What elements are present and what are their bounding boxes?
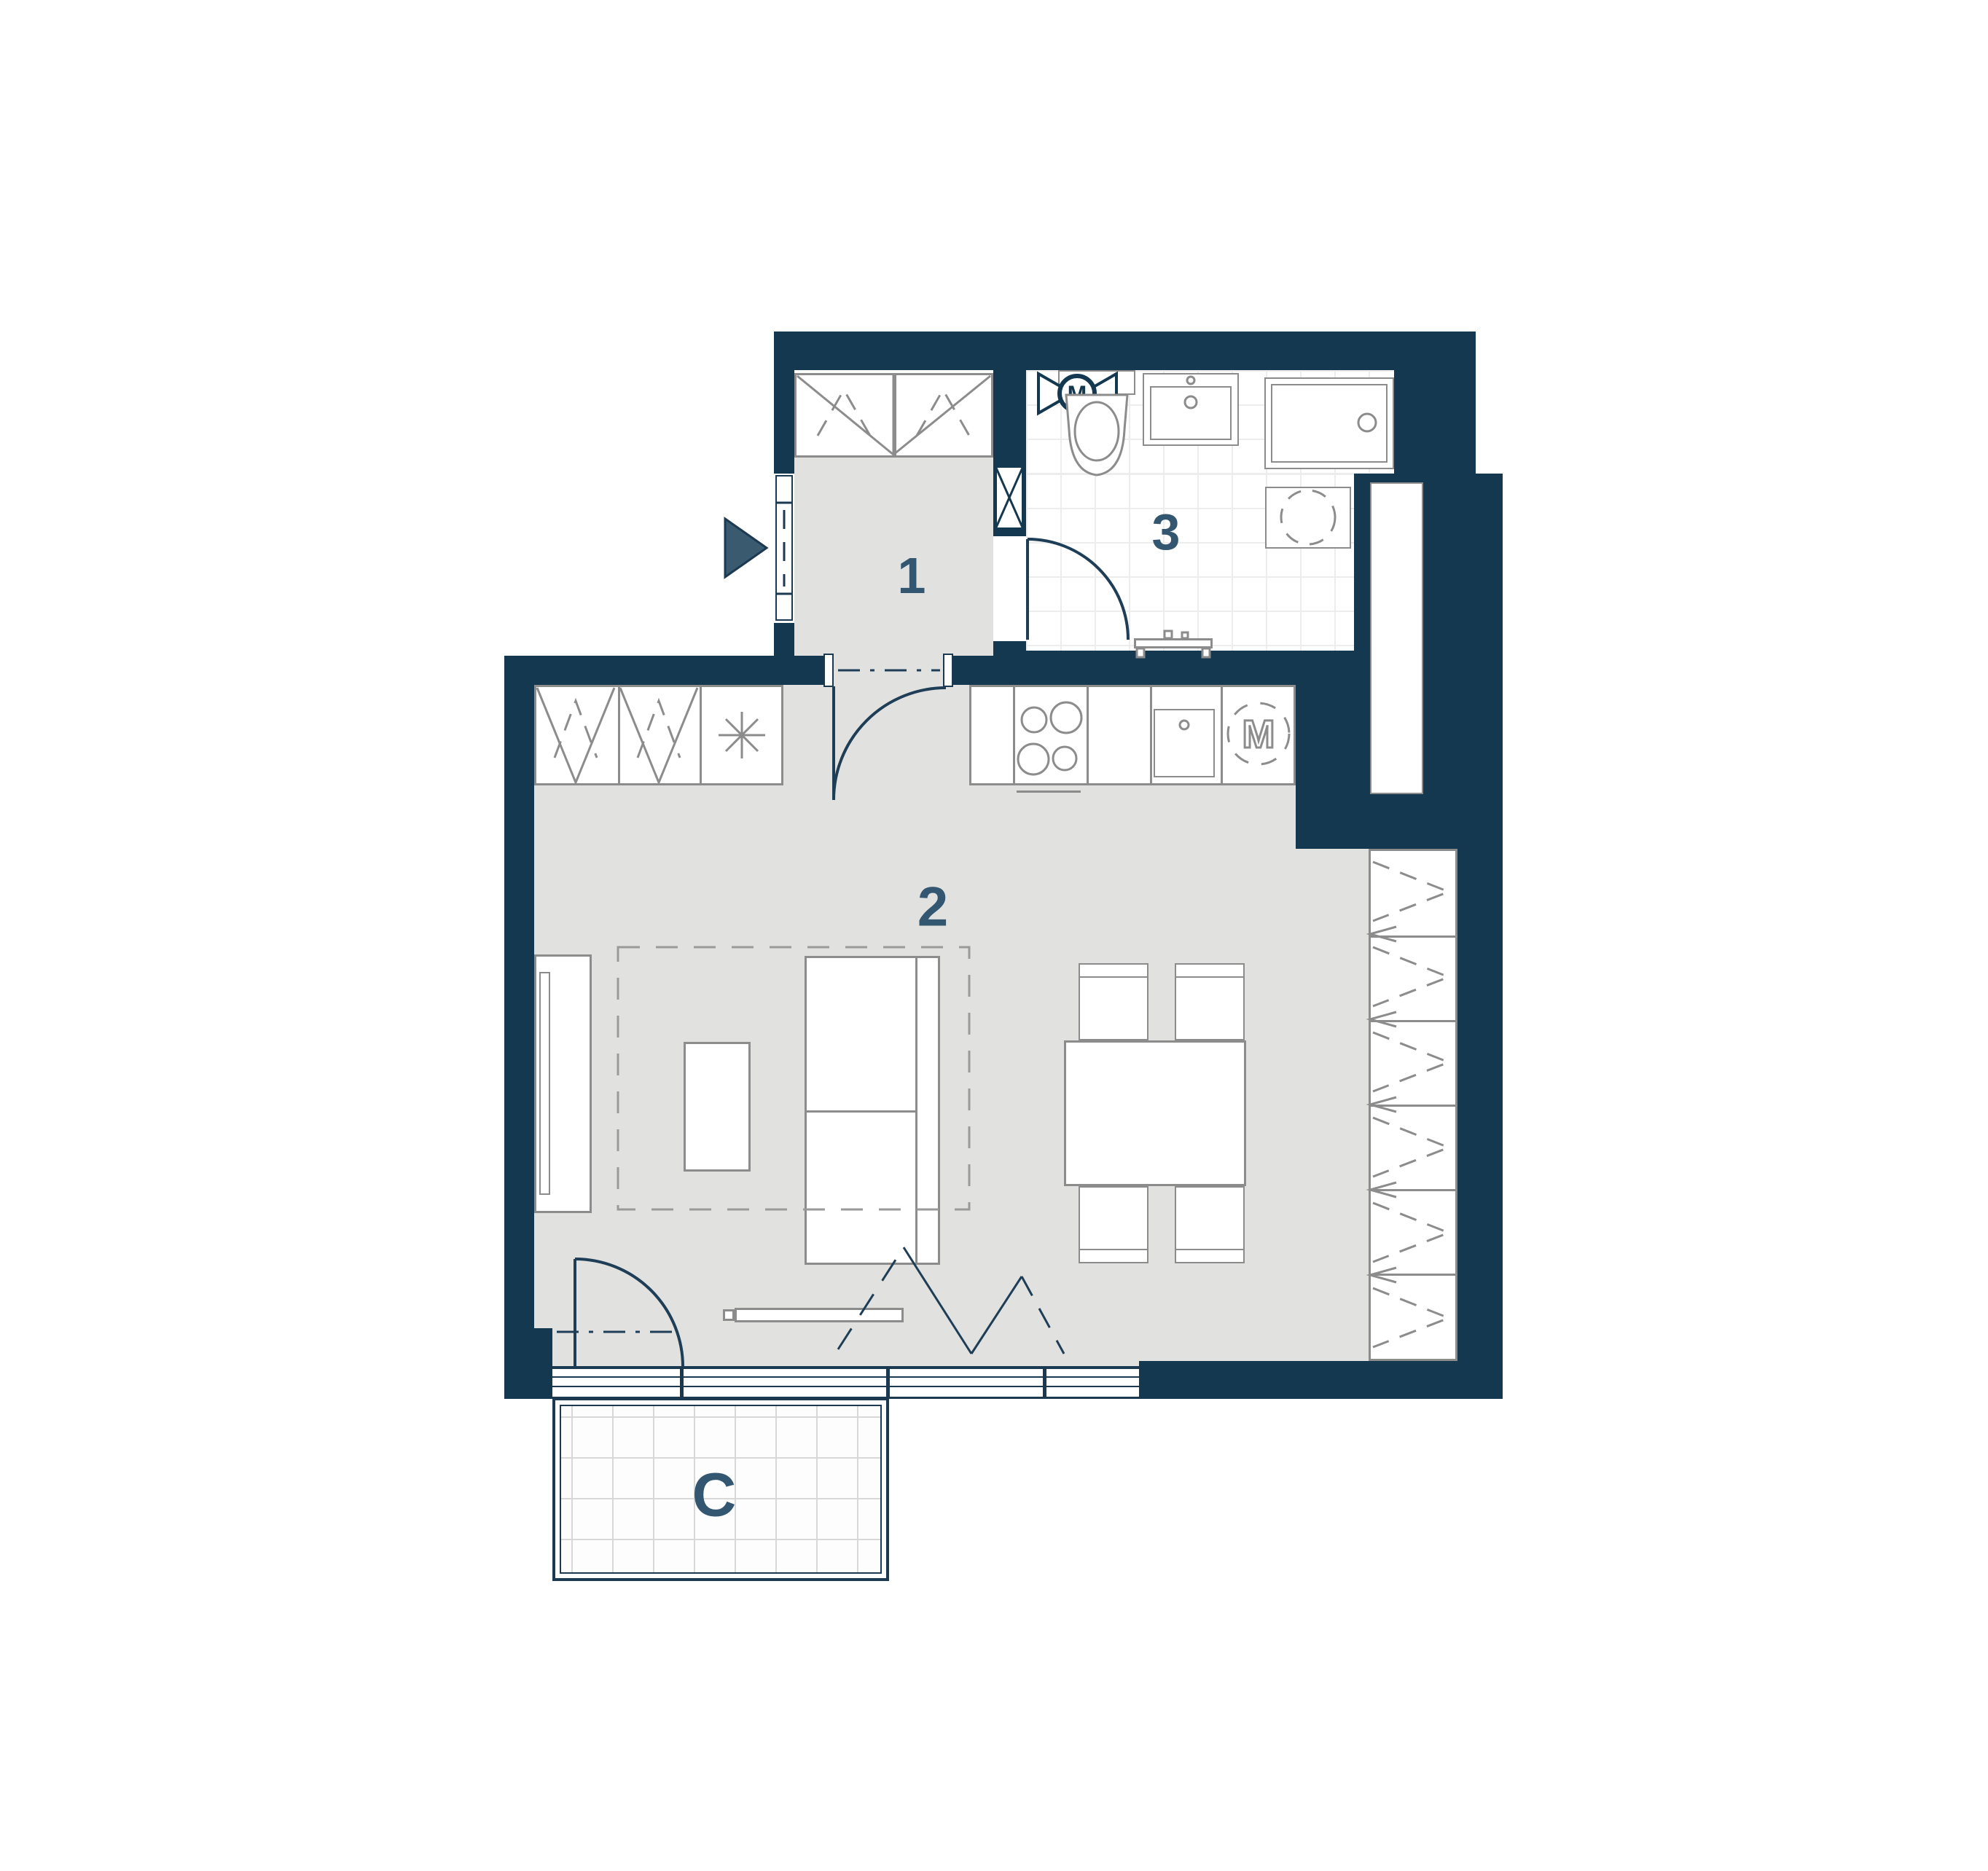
wall-top <box>774 332 1476 370</box>
bath-sink-basin <box>1150 386 1232 440</box>
shower-tray-inner <box>1271 384 1388 463</box>
living-wardrobe <box>534 685 783 785</box>
hall-wardrobe <box>794 373 993 458</box>
hall-label: 1 <box>898 546 926 605</box>
living-label: 2 <box>917 876 948 939</box>
living-radiator-valve <box>723 1309 735 1321</box>
kitchen-cabinet-1 <box>971 687 1013 783</box>
kitchen-washer-letter: M <box>1242 712 1275 757</box>
towel-radiator <box>1134 638 1213 648</box>
living-wardrobe-cell-1 <box>536 687 618 783</box>
balcony-label: C <box>692 1460 737 1531</box>
bath-doorway <box>993 536 1026 641</box>
south-window-band <box>552 1366 1139 1399</box>
dining-chair-3 <box>1079 1186 1148 1263</box>
utility-shaft <box>1370 482 1423 794</box>
window-mullion-3 <box>1043 1366 1046 1399</box>
kitchen-cabinet-2 <box>1087 687 1150 783</box>
hall-wardrobe-cell-1 <box>797 375 894 455</box>
bathroom-label: 3 <box>1152 503 1181 561</box>
hall-living-threshold <box>833 656 944 685</box>
right-wardrobe-column <box>1369 849 1457 1361</box>
dining-table <box>1064 1040 1246 1186</box>
kitchen-sink-basin <box>1154 709 1215 777</box>
hall-living-jamb-left <box>823 654 834 687</box>
tv-cabinet-inner <box>539 972 550 1195</box>
hall-floor <box>794 458 993 685</box>
window-glass-line-2 <box>552 1386 1139 1387</box>
oven-mark <box>1017 791 1081 793</box>
chair-back-line-4 <box>1176 1249 1243 1250</box>
wall-bottom-right <box>1139 1361 1503 1399</box>
dining-chair-2 <box>1175 963 1245 1040</box>
chair-back-line-3 <box>1080 1249 1147 1250</box>
kitchen-cooktop-cell <box>1013 687 1087 783</box>
dining-chair-1 <box>1079 963 1148 1040</box>
floor-plan: 1 3 M <box>0 0 1988 1871</box>
chair-back-line-1 <box>1080 976 1147 978</box>
living-wardrobe-cell-2 <box>618 687 700 783</box>
wall-upper-right-a <box>1394 332 1476 482</box>
right-wardrobe-cell-2 <box>1371 935 1455 1020</box>
coffee-table <box>684 1042 751 1172</box>
dining-chair-4 <box>1175 1186 1245 1263</box>
window-glass-line-1 <box>552 1376 1139 1378</box>
hall-living-jamb-right <box>943 654 953 687</box>
wall-hall-left-lower <box>774 623 794 656</box>
entrance-door-leaf <box>775 475 793 621</box>
window-mullion-1 <box>680 1366 684 1399</box>
wall-bottom-left-corner <box>504 1328 552 1399</box>
right-wardrobe-cell-1 <box>1371 851 1455 935</box>
window-mullion-2 <box>886 1366 890 1399</box>
right-wardrobe-cell-4 <box>1371 1105 1455 1189</box>
living-radiator <box>735 1308 904 1322</box>
toilet-cistern <box>1058 370 1135 395</box>
washing-machine <box>1265 487 1351 549</box>
entrance-arrow-icon <box>725 519 767 577</box>
wall-hall-left-upper <box>774 370 794 474</box>
wall-right <box>1457 794 1503 1399</box>
wall-right-step <box>1476 474 1503 794</box>
right-wardrobe-cell-5 <box>1371 1189 1455 1274</box>
sofa-seat-split <box>807 1110 916 1113</box>
chair-back-line-2 <box>1176 976 1243 978</box>
wall-shaft-cap <box>1370 474 1423 482</box>
wall-left <box>504 656 534 1328</box>
right-wardrobe-cell-3 <box>1371 1020 1455 1105</box>
hall-wardrobe-cell-2 <box>894 375 992 455</box>
wall-bath-bottom <box>993 651 1321 685</box>
living-wardrobe-cell-3 <box>700 687 781 783</box>
right-wardrobe-cell-6 <box>1371 1274 1455 1359</box>
